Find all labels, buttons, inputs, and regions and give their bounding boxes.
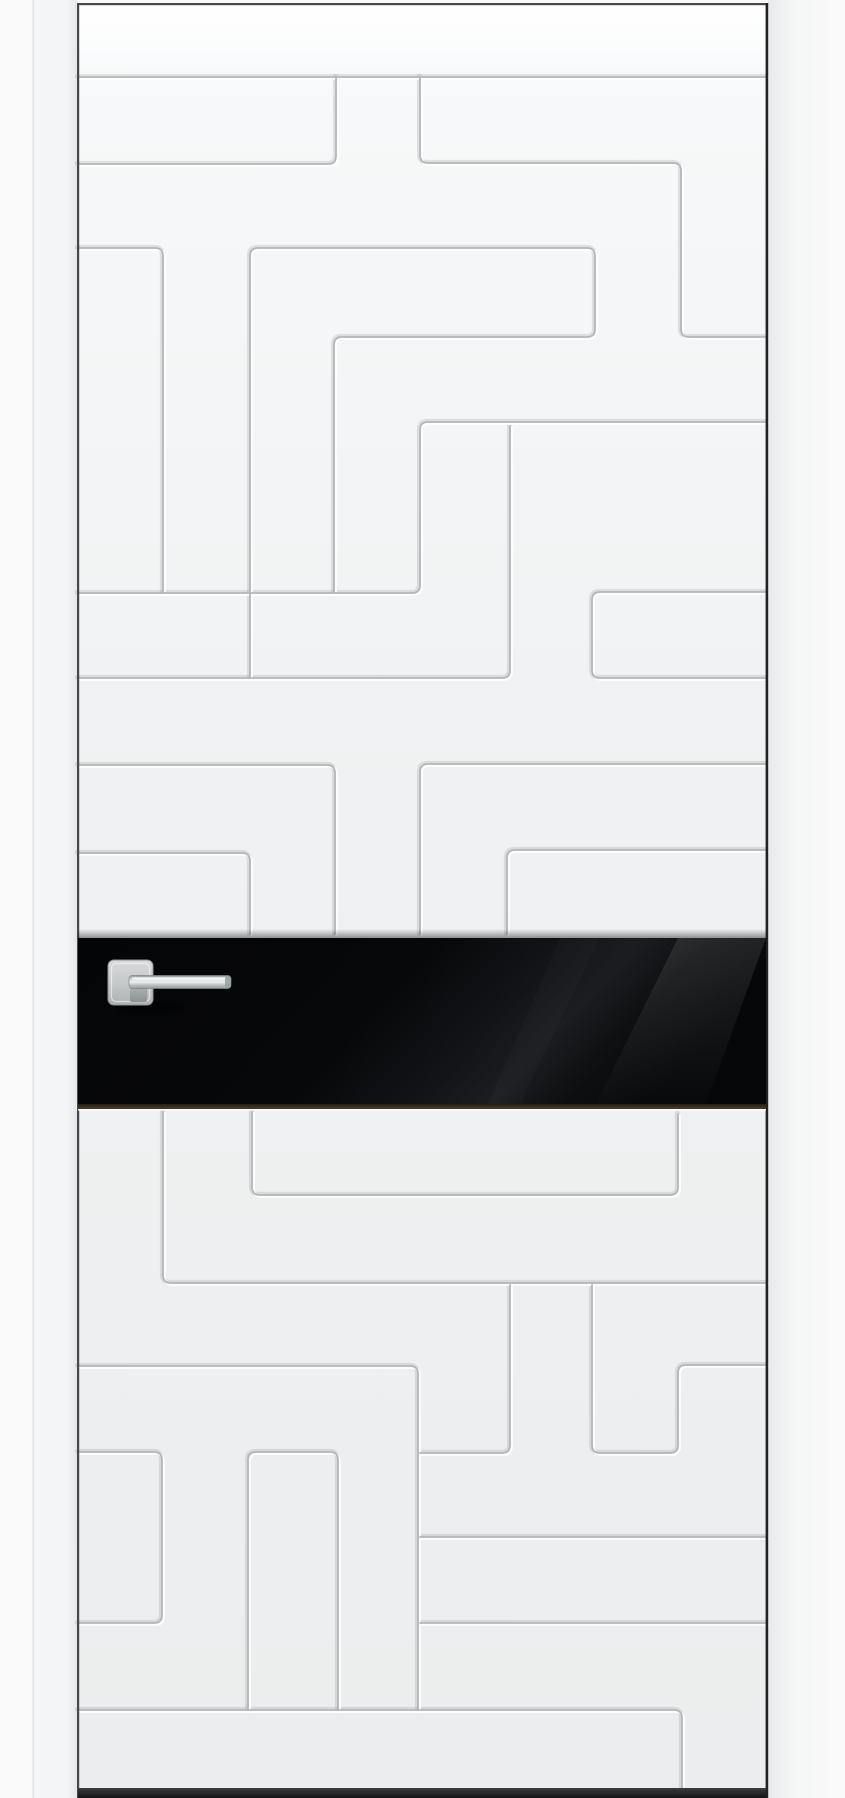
handle-tip-shadow bbox=[231, 981, 241, 984]
leaf-bottom-shadow bbox=[78, 1788, 766, 1798]
top-rail-highlight bbox=[79, 4, 766, 77]
glass-bottom-edge bbox=[78, 1104, 766, 1109]
glass-top-shadow bbox=[78, 929, 766, 938]
leaf-edge-top bbox=[77, 3, 768, 5]
handle-lever-highlight bbox=[132, 977, 228, 979]
door-product-photo bbox=[0, 0, 845, 1798]
frame-left-shadow bbox=[68, 0, 77, 1798]
door-leaf[interactable] bbox=[77, 3, 768, 1798]
leaf-edge-left bbox=[77, 3, 79, 1798]
handle-lever-tip bbox=[225, 977, 230, 988]
glass-insert bbox=[78, 929, 766, 1111]
glass-bottom-highlight bbox=[78, 1109, 766, 1111]
frame-left-line bbox=[33, 0, 35, 1798]
door-frame-right bbox=[768, 0, 845, 1798]
leaf-edge-right bbox=[766, 3, 769, 1798]
